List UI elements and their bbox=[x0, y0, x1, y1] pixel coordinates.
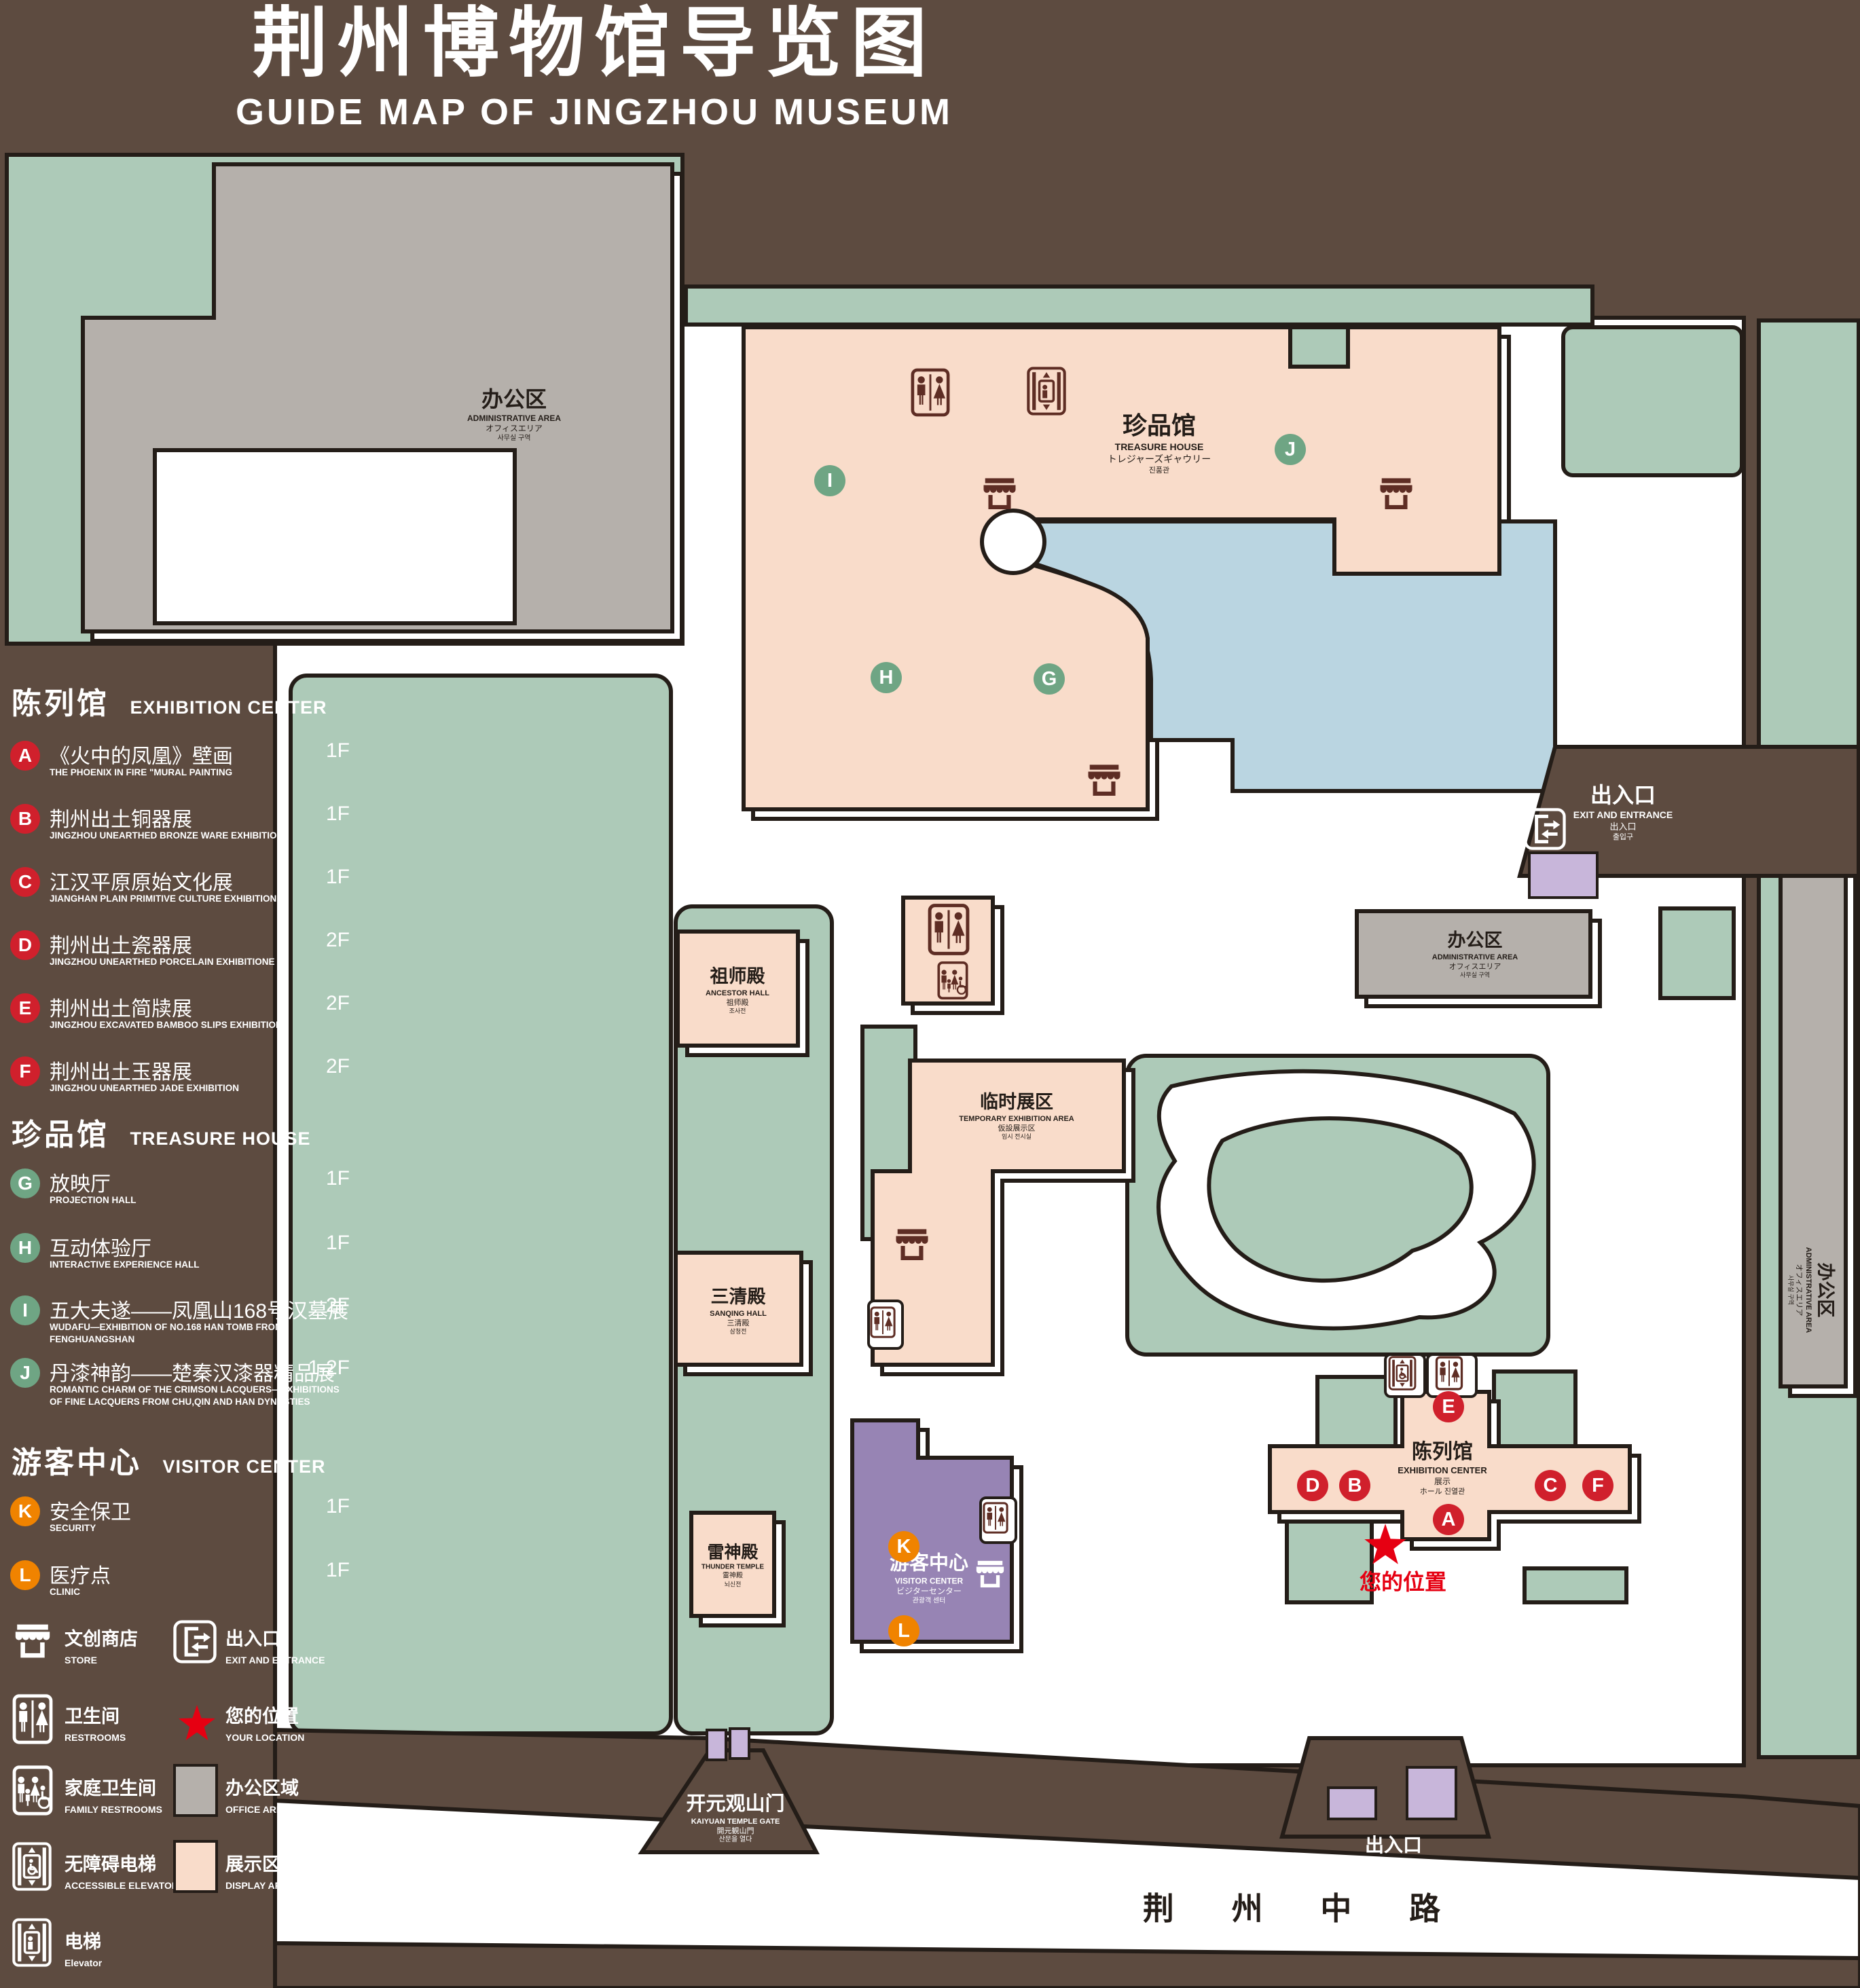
family-restroom-icon bbox=[12, 1764, 53, 1817]
label-kaiyuan-gate: 开元观山门 KAIYUAN TEMPLE GATE 開元観山門 산문을 열다 bbox=[686, 1792, 784, 1845]
lawn-ex-tr bbox=[1494, 1372, 1575, 1450]
pond-channel bbox=[982, 511, 1044, 573]
elevator-icon bbox=[1027, 367, 1066, 416]
store-icon bbox=[1377, 475, 1415, 515]
legend-symbol-accessible-elevator: 无障碍电梯 ACCESSIBLE ELEVATOR bbox=[65, 1849, 179, 1891]
page-title: 荆州博物馆导览图 bbox=[0, 5, 1188, 81]
restroom-icon bbox=[1435, 1356, 1463, 1391]
label-admin-strip: 办公区 ADMINISTRATIVE AREA オフィスエリア 사무실 구역 bbox=[1787, 1247, 1837, 1333]
legend-symbol-exit: 出入口 EXIT AND ENTRANCE bbox=[225, 1624, 325, 1665]
badge-A: A bbox=[10, 741, 40, 771]
map-shapes bbox=[0, 0, 1860, 1988]
treasure-notch bbox=[1290, 327, 1348, 367]
restroom-icon bbox=[910, 368, 951, 417]
lawn-ex-br bbox=[1525, 1568, 1626, 1602]
map-marker-J: J bbox=[1275, 434, 1306, 465]
badge-D: D bbox=[10, 930, 40, 960]
legend-symbol-family-restrooms: 家庭卫生间 FAMILY RESTROOMS bbox=[65, 1773, 162, 1815]
accessible-elevator-icon bbox=[12, 1840, 52, 1893]
guide-map-poster: 荆州博物馆导览图 GUIDE MAP OF JINGZHOU MUSEUM 办公… bbox=[0, 0, 1860, 1988]
restroom-icon bbox=[983, 1500, 1008, 1536]
badge-B: B bbox=[10, 804, 40, 834]
lawn-admin-right bbox=[1660, 908, 1734, 998]
exit-bottom-area bbox=[1282, 1738, 1489, 1837]
label-sanqing-hall: 三清殿 SANQING HALL 三清殿 삼청전 bbox=[710, 1285, 767, 1336]
badge-I: I bbox=[10, 1295, 40, 1325]
label-exit-top-right: 出入口 EXIT AND ENTRANCE 出入口 출입구 bbox=[1573, 781, 1673, 843]
restroom-icon bbox=[928, 903, 970, 956]
store-icon bbox=[12, 1620, 53, 1665]
map-marker-F: F bbox=[1582, 1470, 1613, 1501]
legend-symbol-display-area: 展示区域 DISPLAY AREA bbox=[225, 1849, 299, 1891]
badge-H: H bbox=[10, 1233, 40, 1263]
restroom-icon bbox=[12, 1692, 53, 1746]
legend-symbol-your-location: 您的位置 YOUR LOCATION bbox=[225, 1701, 304, 1743]
legend-section-treasure: 珍品馆 TREASURE HOUSE bbox=[12, 1110, 310, 1154]
map-marker-A: A bbox=[1433, 1504, 1464, 1535]
badge-G: G bbox=[10, 1168, 40, 1198]
legend-section-visitor: 游客中心 VISITOR CENTER bbox=[12, 1438, 326, 1481]
gate-booth-a bbox=[707, 1730, 726, 1760]
label-exhibition-center: 陈列馆 EXHIBITION CENTER 展示 ホール 진열관 bbox=[1398, 1439, 1487, 1496]
map-marker-K: K bbox=[888, 1531, 919, 1562]
badge-E: E bbox=[10, 993, 40, 1023]
badge-L: L bbox=[10, 1560, 40, 1590]
badge-K: K bbox=[10, 1496, 40, 1526]
badge-F: F bbox=[10, 1056, 40, 1086]
family-restroom-icon bbox=[937, 960, 968, 1001]
legend-symbol-store: 文创商店 STORE bbox=[65, 1624, 138, 1665]
gate-bottom-booth-right bbox=[1407, 1767, 1456, 1819]
map-marker-C: C bbox=[1535, 1470, 1566, 1501]
map-marker-H: H bbox=[871, 662, 902, 693]
legend-section-exhibition: 陈列馆 EXHIBITION CENTER bbox=[12, 679, 327, 722]
exit-icon bbox=[1524, 808, 1566, 850]
legend-symbol-elevator: 电梯 Elevator bbox=[65, 1927, 102, 1968]
label-admin-right: 办公区 ADMINISTRATIVE AREA オフィスエリア 사무실 구역 bbox=[1432, 929, 1518, 979]
gate-bottom-booth-left bbox=[1328, 1788, 1376, 1819]
your-location-star bbox=[1364, 1523, 1407, 1566]
map-marker-L: L bbox=[888, 1615, 919, 1646]
page-subtitle: GUIDE MAP OF JINGZHOU MUSEUM bbox=[0, 91, 1188, 133]
map-marker-D: D bbox=[1297, 1470, 1328, 1501]
map-marker-G: G bbox=[1034, 663, 1065, 695]
gate-tr-booth bbox=[1529, 853, 1597, 898]
exit-icon bbox=[173, 1619, 217, 1664]
label-exit-bottom: 出入口 EXIT AND ENTRANCE 出入口 출입구 bbox=[1354, 1833, 1432, 1883]
map-marker-I: I bbox=[814, 465, 845, 496]
display-area-swatch bbox=[173, 1840, 218, 1893]
store-icon bbox=[893, 1226, 931, 1266]
road-name: 荆 州 中 路 bbox=[1143, 1884, 1465, 1929]
your-location-star-icon bbox=[178, 1704, 216, 1742]
elevator-icon bbox=[12, 1916, 52, 1969]
lawn-top-band bbox=[686, 287, 1592, 325]
store-icon bbox=[981, 475, 1019, 515]
label-admin-top-left: 办公区 ADMINISTRATIVE AREA オフィスエリア 사무실 구역 bbox=[467, 386, 561, 443]
legend-symbol-restrooms: 卫生间 RESTROOMS bbox=[65, 1701, 126, 1743]
label-ancestor-hall: 祖师殿 ANCESTOR HALL 祖师殿 조사전 bbox=[706, 965, 769, 1015]
badge-C: C bbox=[10, 867, 40, 897]
map-marker-E: E bbox=[1433, 1391, 1464, 1422]
label-temporary-area: 临时展区 TEMPORARY EXHIBITION AREA 仮設展示区 임시 … bbox=[959, 1090, 1074, 1141]
label-treasure-house: 珍品馆 TREASURE HOUSE トレジャーズギャウリー 진품관 bbox=[1108, 410, 1211, 475]
your-location-label: 您的位置 bbox=[1360, 1565, 1446, 1596]
accessible-elevator-icon bbox=[1387, 1356, 1417, 1391]
store-icon bbox=[1085, 762, 1123, 801]
label-thunder-temple: 雷神殿 THUNDER TEMPLE 雷神殿 뇌신전 bbox=[701, 1541, 764, 1588]
restroom-icon bbox=[870, 1303, 896, 1342]
gate-booth-b bbox=[730, 1729, 749, 1759]
map-marker-B: B bbox=[1339, 1470, 1370, 1501]
admin-tl-courtyard bbox=[155, 450, 515, 623]
badge-J: J bbox=[10, 1358, 40, 1388]
store-icon bbox=[974, 1555, 1006, 1596]
office-area-swatch bbox=[173, 1764, 218, 1817]
lawn-top-right bbox=[1563, 327, 1742, 475]
header: 荆州博物馆导览图 GUIDE MAP OF JINGZHOU MUSEUM bbox=[0, 0, 1188, 133]
legend-symbol-office-area: 办公区域 OFFICE AREA bbox=[225, 1773, 299, 1815]
